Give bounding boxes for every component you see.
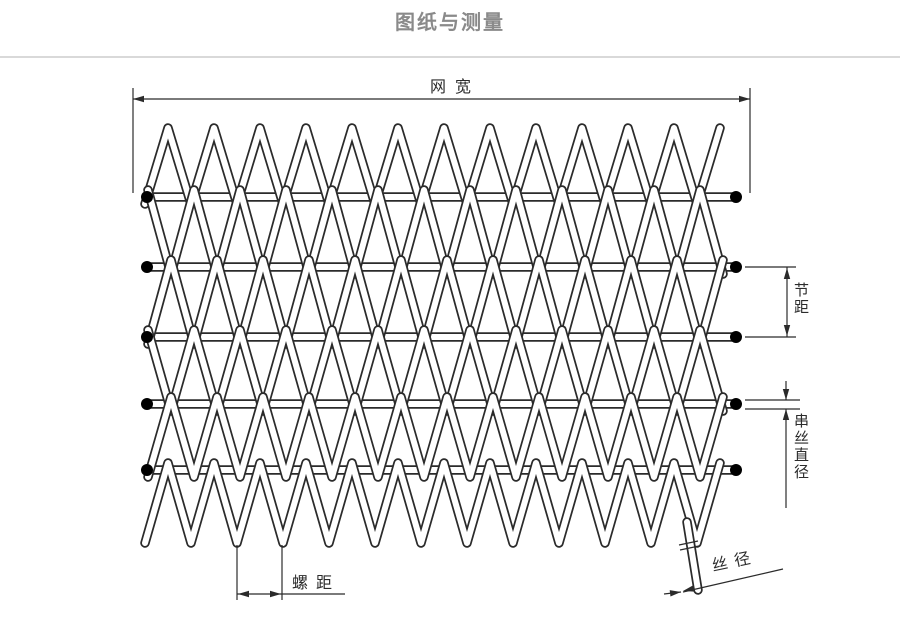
label-pitch: 节距 xyxy=(793,282,810,316)
mesh-diagram: 图纸与测量 网宽 节距 串丝直径 螺距 丝径 xyxy=(0,0,900,628)
label-spiral-pitch: 螺距 xyxy=(292,569,340,593)
label-cross-wire-diameter: 串丝直径 xyxy=(793,413,810,481)
label-mesh-width: 网宽 xyxy=(393,73,517,97)
